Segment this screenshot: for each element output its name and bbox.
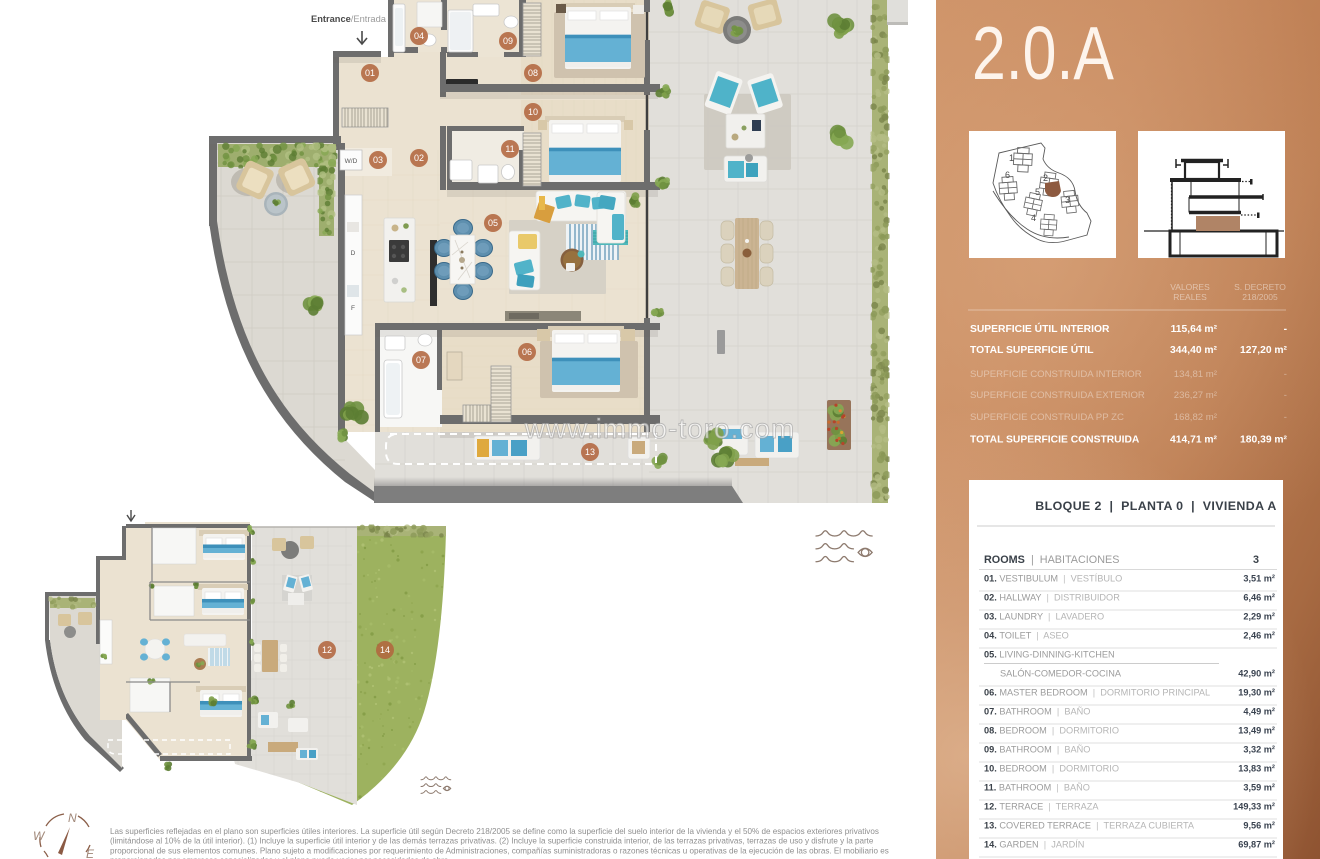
svg-text:ROOMS: ROOMS (984, 554, 1025, 566)
svg-text:BLOQUE 2 | PLANTA 0 | VIVI: BLOQUE 2 | PLANTA 0 | VIVIENDA A (1035, 499, 1276, 513)
svg-text:-: - (1284, 412, 1287, 423)
svg-text:SUPERFICIE ÚTIL INTERIOR: SUPERFICIE ÚTIL INTERIOR (970, 322, 1110, 335)
svg-text:10. BEDROOM | DORMITORIO: 10. BEDROOM | DORMITORIO (984, 764, 1119, 774)
svg-text:13. COVERED TERRACE | TERRAZ: 13. COVERED TERRACE | TERRAZA CUBIERTA (984, 821, 1195, 831)
svg-text:07. BATHROOM | BAÑO: 07. BATHROOM | BAÑO (984, 707, 1090, 717)
svg-text:02: 02 (414, 153, 424, 163)
svg-text:14: 14 (380, 645, 390, 655)
svg-text:06: 06 (522, 347, 532, 357)
svg-text:11: 11 (505, 144, 514, 154)
svg-text:13: 13 (585, 447, 595, 457)
svg-text:N: N (68, 811, 77, 825)
svg-text:08. BEDROOM | DORMITORIO: 08. BEDROOM | DORMITORIO (984, 726, 1119, 736)
svg-text:19,30 m²: 19,30 m² (1238, 688, 1275, 698)
svg-text:D: D (351, 250, 356, 257)
svg-text:-: - (1284, 390, 1287, 401)
svg-text:05. LIVING-DINNING-KITCHEN: 05. LIVING-DINNING-KITCHEN (984, 650, 1115, 660)
svg-text:3: 3 (1253, 554, 1259, 566)
svg-text:10: 10 (528, 107, 538, 117)
svg-text:(limitándose al 10% de la útil: (limitándose al 10% de la útil interior)… (110, 837, 874, 846)
svg-text:9,56 m²: 9,56 m² (1243, 821, 1275, 831)
svg-text:134,81 m²: 134,81 m² (1174, 369, 1218, 380)
svg-text:4,49 m²: 4,49 m² (1243, 707, 1275, 717)
svg-text:07: 07 (416, 355, 426, 365)
svg-text:115,64 m²: 115,64 m² (1171, 324, 1218, 335)
svg-text:180,39 m²: 180,39 m² (1240, 434, 1288, 445)
svg-text:3,51 m²: 3,51 m² (1243, 574, 1275, 584)
svg-text:SALÓN-COMEDOR-COCINA: SALÓN-COMEDOR-COCINA (1000, 669, 1122, 679)
svg-text:SUPERFICIE CONSTRUIDA INTERIOR: SUPERFICIE CONSTRUIDA INTERIOR (970, 369, 1142, 380)
svg-text:127,20 m²: 127,20 m² (1240, 345, 1288, 356)
svg-text:www.immo-toro.com: www.immo-toro.com (524, 413, 796, 444)
svg-text:| HABITACIONES: | HABITACIONES (1028, 554, 1119, 566)
svg-text:proporcional de sus elementos: proporcional de sus elementos comunes. P… (110, 846, 889, 855)
svg-text:149,33 m²: 149,33 m² (1233, 802, 1275, 812)
svg-text:09: 09 (503, 36, 513, 46)
svg-text:3: 3 (1065, 195, 1070, 205)
svg-text:TOTAL SUPERFICIE CONSTRUIDA: TOTAL SUPERFICIE CONSTRUIDA (970, 434, 1140, 445)
svg-text:E: E (86, 847, 95, 859)
svg-text:SUPERFICIE CONSTRUIDA PP ZC: SUPERFICIE CONSTRUIDA PP ZC (970, 412, 1124, 423)
svg-text:13,83 m²: 13,83 m² (1238, 764, 1275, 774)
svg-text:414,71 m²: 414,71 m² (1170, 434, 1218, 445)
svg-text:S. DECRETO: S. DECRETO (1234, 282, 1286, 292)
svg-text:Entrance/Entrada: Entrance/Entrada (311, 14, 387, 24)
svg-text:TOTAL SUPERFICIE ÚTIL: TOTAL SUPERFICIE ÚTIL (970, 343, 1094, 356)
svg-text:42,90 m²: 42,90 m² (1238, 669, 1275, 679)
svg-text:2,46 m²: 2,46 m² (1243, 631, 1275, 641)
svg-text:REALES: REALES (1173, 292, 1207, 302)
svg-text:F: F (351, 305, 355, 312)
svg-text:VALORES: VALORES (1170, 282, 1210, 292)
svg-text:W/D: W/D (345, 158, 358, 165)
svg-text:236,27 m²: 236,27 m² (1174, 390, 1218, 401)
svg-text:01. VESTIBULUM | VESTÍBULO: 01. VESTIBULUM | VESTÍBULO (984, 574, 1122, 584)
svg-text:09. BATHROOM | BAÑO: 09. BATHROOM | BAÑO (984, 745, 1090, 755)
svg-text:06. MASTER BEDROOM | DORMITO: 06. MASTER BEDROOM | DORMITORIO PRINCIPA… (984, 688, 1210, 698)
svg-text:2,29 m²: 2,29 m² (1243, 612, 1275, 622)
svg-text:05: 05 (488, 218, 498, 228)
svg-text:04. TOILET | ASEO: 04. TOILET | ASEO (984, 631, 1069, 641)
svg-text:04: 04 (414, 31, 424, 41)
svg-text:03. LAUNDRY | LAVADERO: 03. LAUNDRY | LAVADERO (984, 612, 1104, 622)
svg-text:5: 5 (1035, 187, 1040, 197)
svg-text:08: 08 (528, 68, 538, 78)
svg-text:-: - (1284, 369, 1287, 380)
svg-text:6,46 m²: 6,46 m² (1243, 593, 1275, 603)
svg-text:01: 01 (365, 68, 375, 78)
svg-text:2: 2 (1043, 173, 1048, 183)
svg-text:Las superficies reflejadas en: Las superficies reflejadas en el plano s… (110, 827, 879, 836)
svg-text:3,59 m²: 3,59 m² (1243, 783, 1275, 793)
svg-text:03: 03 (373, 155, 383, 165)
svg-text:11. BATHROOM | BAÑO: 11. BATHROOM | BAÑO (984, 783, 1090, 793)
svg-text:6: 6 (1005, 170, 1010, 180)
svg-text:SUPERFICIE CONSTRUIDA EXTERIOR: SUPERFICIE CONSTRUIDA EXTERIOR (970, 390, 1145, 401)
svg-text:4: 4 (1031, 213, 1036, 223)
svg-text:1: 1 (1009, 153, 1014, 163)
svg-text:02. HALLWAY | DISTRIBUIDOR: 02. HALLWAY | DISTRIBUIDOR (984, 593, 1120, 603)
svg-text:14. GARDEN | JARDÍN: 14. GARDEN | JARDÍN (984, 840, 1084, 850)
svg-text:344,40 m²: 344,40 m² (1170, 345, 1218, 356)
svg-text:3,32 m²: 3,32 m² (1243, 745, 1275, 755)
svg-text:218/2005: 218/2005 (1242, 292, 1278, 302)
svg-text:12. TERRACE | TERRAZA: 12. TERRACE | TERRAZA (984, 802, 1099, 812)
svg-text:13,49 m²: 13,49 m² (1238, 726, 1275, 736)
svg-text:W: W (33, 829, 46, 843)
svg-text:-: - (1284, 324, 1288, 335)
svg-text:168,82 m²: 168,82 m² (1174, 412, 1218, 423)
svg-text:69,87 m²: 69,87 m² (1238, 840, 1275, 850)
svg-text:12: 12 (322, 645, 332, 655)
